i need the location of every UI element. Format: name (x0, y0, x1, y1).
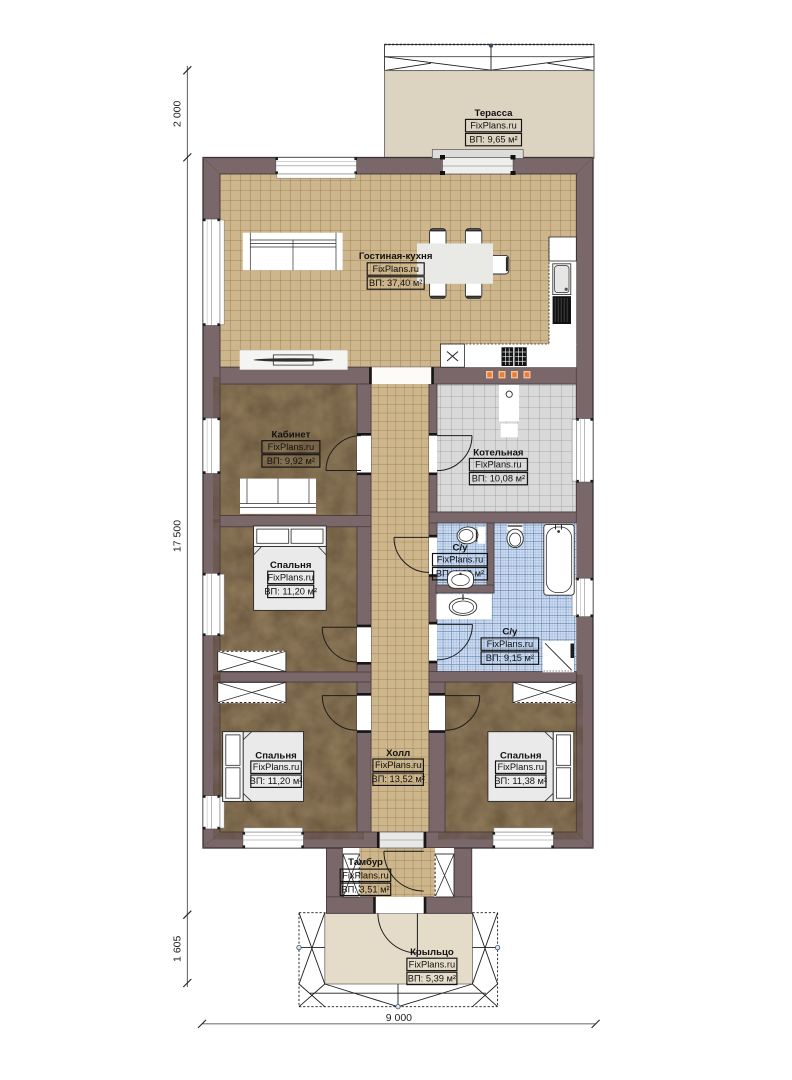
svg-text:ВП: 11,38 м²: ВП: 11,38 м² (494, 776, 547, 786)
svg-text:С/у: С/у (502, 627, 518, 638)
svg-text:FixPlans.ru: FixPlans.ru (470, 121, 517, 131)
svg-text:FixPlans.ru: FixPlans.ru (268, 442, 315, 452)
svg-text:FixPlans.ru: FixPlans.ru (375, 760, 422, 770)
svg-text:Тамбур: Тамбур (348, 857, 383, 868)
svg-text:9 000: 9 000 (386, 1012, 412, 1024)
svg-text:ВП: 11,20 м²: ВП: 11,20 м² (264, 586, 317, 596)
svg-text:ВП: 9,92 м²: ВП: 9,92 м² (267, 456, 315, 466)
svg-text:FixPlans.ru: FixPlans.ru (437, 555, 484, 565)
svg-text:FixPlans.ru: FixPlans.ru (372, 264, 419, 274)
svg-text:FixPlans.ru: FixPlans.ru (497, 762, 544, 772)
svg-text:ВП: 13,52 м²: ВП: 13,52 м² (372, 774, 425, 784)
svg-text:FixPlans.ru: FixPlans.ru (409, 959, 456, 969)
svg-text:1 605: 1 605 (172, 936, 184, 962)
svg-text:Спальня: Спальня (270, 560, 311, 571)
svg-text:Спальня: Спальня (500, 750, 541, 761)
svg-text:Холл: Холл (386, 748, 410, 759)
svg-text:С/у: С/у (453, 543, 469, 554)
svg-text:FixPlans.ru: FixPlans.ru (253, 762, 300, 772)
svg-text:Кабинет: Кабинет (271, 430, 310, 441)
svg-text:ВП: 11,20 м²: ВП: 11,20 м² (250, 776, 303, 786)
svg-text:Гостиная-кухня: Гостиная-кухня (359, 251, 433, 262)
svg-text:Спальня: Спальня (255, 750, 296, 761)
svg-text:ВП: 9,15 м²: ВП: 9,15 м² (486, 653, 534, 663)
svg-text:ВП: 5,39 м²: ВП: 5,39 м² (408, 973, 456, 983)
svg-text:Терасса: Терасса (474, 108, 513, 119)
svg-text:FixPlans.ru: FixPlans.ru (267, 572, 314, 582)
svg-text:ВП: 9,65 м²: ВП: 9,65 м² (469, 135, 517, 145)
svg-text:Крыльцо: Крыльцо (410, 947, 454, 958)
svg-text:ВП: 3,51 м²: ВП: 3,51 м² (341, 884, 389, 894)
svg-text:ВП: 10,08 м²: ВП: 10,08 м² (472, 474, 525, 484)
svg-text:17 500: 17 500 (172, 520, 184, 552)
svg-text:ВП: 37,40 м²: ВП: 37,40 м² (369, 278, 422, 288)
svg-text:FixPlans.ru: FixPlans.ru (475, 460, 522, 470)
svg-text:FixPlans.ru: FixPlans.ru (487, 639, 534, 649)
svg-text:Котельная: Котельная (473, 448, 523, 459)
svg-text:FixPlans.ru: FixPlans.ru (342, 870, 389, 880)
svg-text:2 000: 2 000 (172, 101, 184, 127)
